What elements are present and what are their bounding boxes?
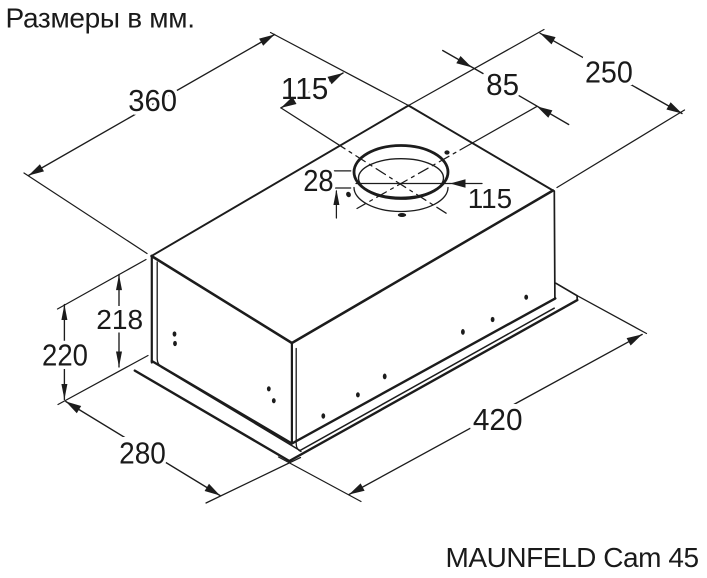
svg-text:250: 250 [585,55,633,90]
svg-text:85: 85 [486,67,519,102]
svg-text:218: 218 [96,304,143,335]
svg-text:115: 115 [468,183,512,214]
svg-text:220: 220 [42,338,88,373]
svg-text:115: 115 [281,71,329,106]
svg-text:360: 360 [128,83,177,118]
svg-text:Размеры в мм.: Размеры в мм. [6,3,195,34]
svg-text:28: 28 [303,163,333,198]
svg-text:280: 280 [119,436,166,471]
svg-text:420: 420 [473,402,523,437]
svg-text:MAUNFELD Cam 45: MAUNFELD Cam 45 [446,542,699,573]
